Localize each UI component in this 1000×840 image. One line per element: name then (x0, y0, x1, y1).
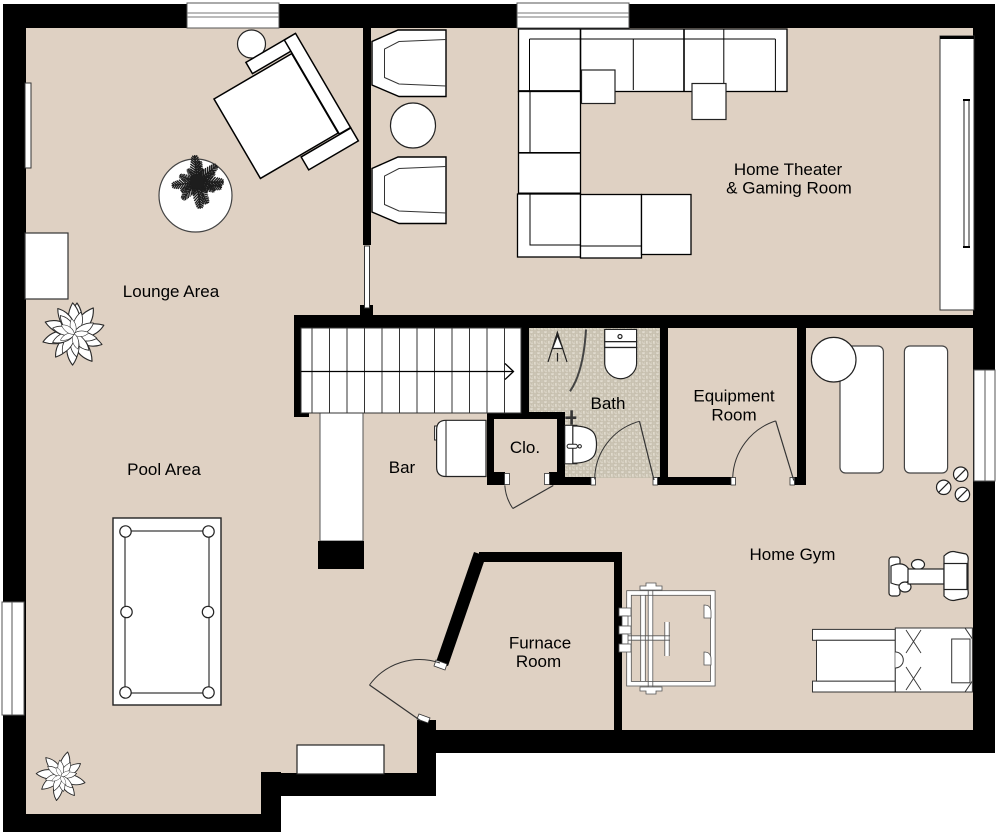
svg-text:Equipment: Equipment (693, 387, 775, 406)
svg-text:Bath: Bath (591, 394, 626, 413)
svg-text:Bar: Bar (389, 458, 416, 477)
svg-text:Lounge Area: Lounge Area (123, 282, 220, 301)
svg-text:Pool Area: Pool Area (127, 460, 201, 479)
svg-text:Furnace: Furnace (509, 634, 571, 653)
svg-text:Room: Room (516, 652, 561, 671)
svg-text:Clo.: Clo. (510, 438, 540, 457)
svg-text:Room: Room (711, 406, 756, 425)
svg-text:Home Theater: Home Theater (734, 160, 843, 179)
svg-text:Home Gym: Home Gym (750, 545, 836, 564)
svg-text:& Gaming Room: & Gaming Room (726, 179, 852, 198)
